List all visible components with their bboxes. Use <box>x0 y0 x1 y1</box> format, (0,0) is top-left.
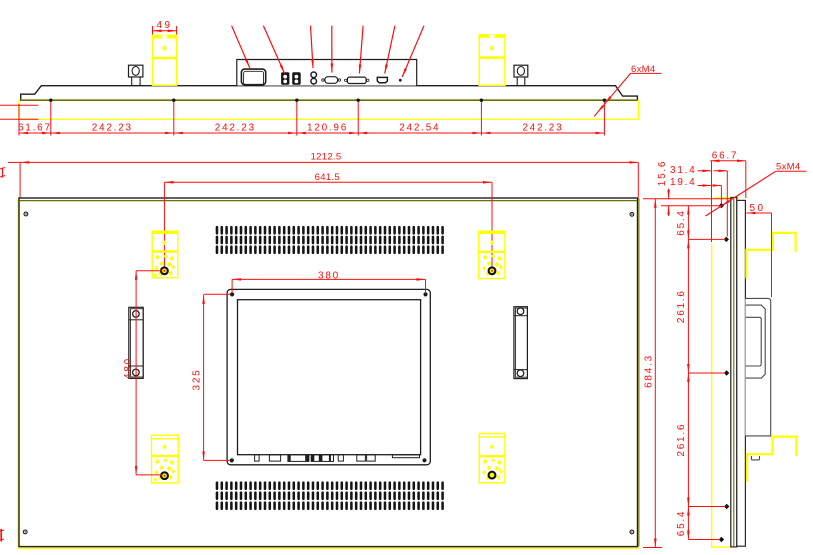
svg-text:1212.5: 1212.5 <box>311 152 342 163</box>
svg-text:242.23: 242.23 <box>92 123 133 134</box>
svg-text:120.96: 120.96 <box>307 123 348 134</box>
svg-text:684.3: 684.3 <box>643 354 654 388</box>
svg-text:5xM4: 5xM4 <box>776 161 800 172</box>
svg-text:15.6: 15.6 <box>657 160 668 186</box>
svg-text:31.4: 31.4 <box>670 165 696 176</box>
svg-text:19.4: 19.4 <box>670 177 696 188</box>
svg-text:61.67: 61.67 <box>18 123 52 134</box>
svg-text:242.54: 242.54 <box>399 123 440 134</box>
svg-text:641.5: 641.5 <box>315 172 340 183</box>
svg-text:65.4: 65.4 <box>676 510 687 536</box>
svg-text:242.23: 242.23 <box>522 123 563 134</box>
svg-text:325: 325 <box>192 369 203 391</box>
svg-text:480: 480 <box>123 357 134 379</box>
svg-text:65.4: 65.4 <box>676 209 687 235</box>
svg-text:261.6: 261.6 <box>676 289 687 323</box>
svg-text:50: 50 <box>749 203 765 214</box>
svg-text:49: 49 <box>156 20 172 31</box>
svg-text:242.23: 242.23 <box>215 123 256 134</box>
svg-text:261.6: 261.6 <box>676 423 687 457</box>
svg-text:66.7: 66.7 <box>712 151 738 162</box>
